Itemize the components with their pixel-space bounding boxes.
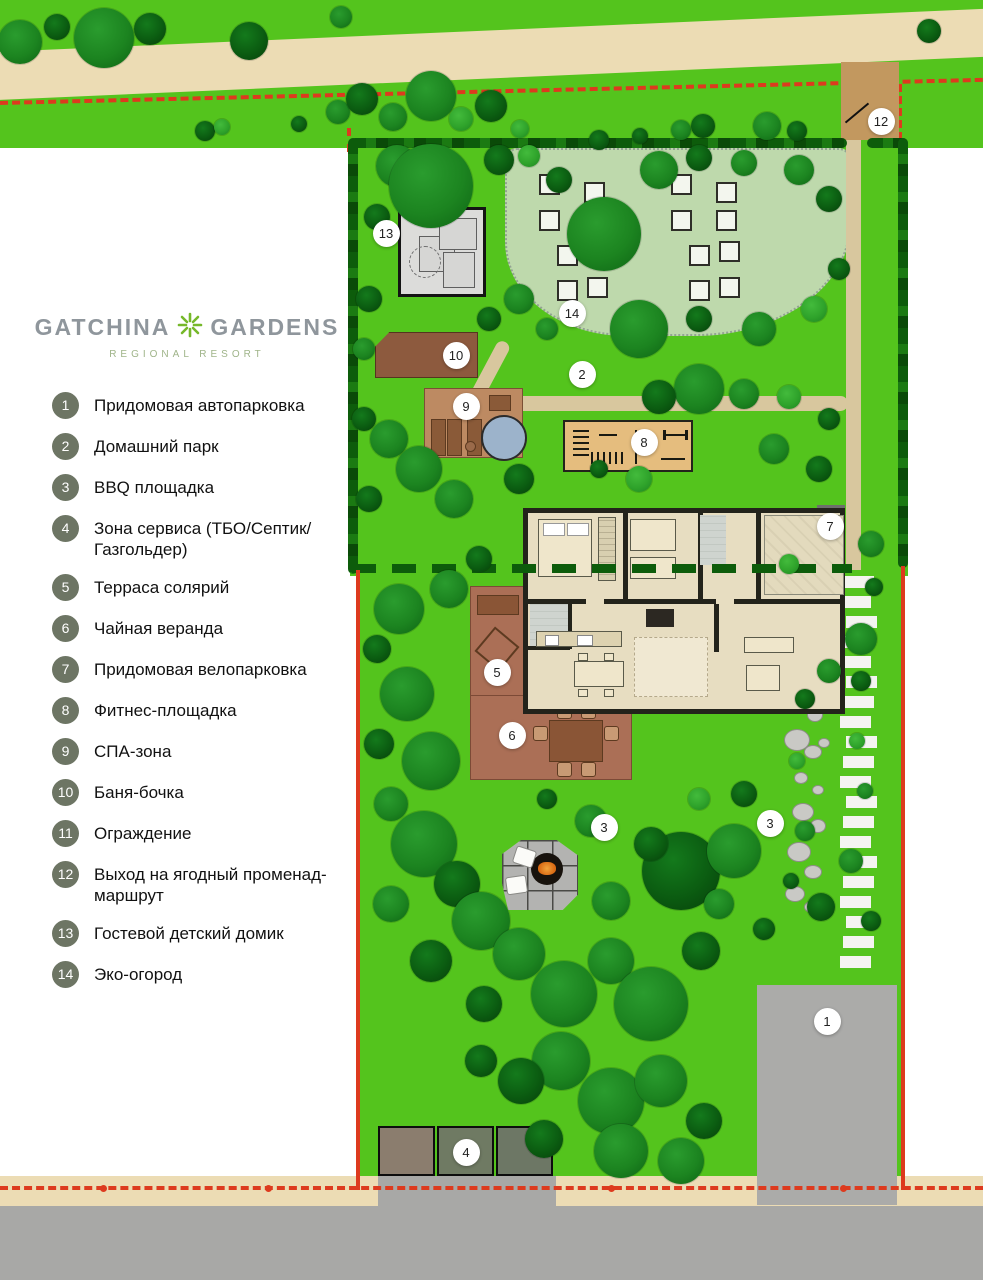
tree <box>731 150 757 176</box>
legend-label: Фитнес-площадка <box>94 697 237 721</box>
tree <box>484 145 514 175</box>
tree <box>230 22 268 60</box>
legend-number: 1 <box>52 392 79 419</box>
legend-item: 11Ограждение <box>52 820 352 847</box>
tree <box>352 407 376 431</box>
legend-item: 6Чайная веранда <box>52 615 352 642</box>
tree <box>828 258 850 280</box>
tree <box>777 385 801 409</box>
kitchen-island <box>646 609 674 627</box>
legend-item: 7Придомовая велопарковка <box>52 656 352 683</box>
tree <box>134 13 166 45</box>
logo-subtitle: REGIONAL RESORT <box>52 349 322 360</box>
boundary-dot <box>265 1185 272 1192</box>
tree <box>806 456 832 482</box>
logo-brand-left: GATCHINA <box>35 314 171 341</box>
garden-bed <box>716 210 737 231</box>
map-marker: 13 <box>373 220 400 247</box>
legend-item: 12Выход на ягодный променад-маршрут <box>52 861 352 906</box>
tree <box>917 19 941 43</box>
tree <box>363 635 391 663</box>
tree <box>374 584 424 634</box>
stove <box>577 635 593 646</box>
tree <box>379 103 407 131</box>
tree <box>546 167 572 193</box>
legend-label: Баня-бочка <box>94 779 184 803</box>
tree <box>839 849 863 873</box>
tree <box>504 464 534 494</box>
legend-label: Придомовая автопарковка <box>94 392 305 416</box>
tree <box>498 1058 544 1104</box>
boundary-red-dashed-bottom <box>0 1186 983 1190</box>
map-marker: 6 <box>499 722 526 749</box>
tree <box>742 312 776 346</box>
chair <box>604 653 614 661</box>
fitness-area <box>563 420 693 472</box>
legend-number: 7 <box>52 656 79 683</box>
garden-bed <box>719 277 740 298</box>
tree <box>406 71 456 121</box>
tree <box>291 116 307 132</box>
tree <box>686 306 712 332</box>
tree <box>592 882 630 920</box>
legend-number: 10 <box>52 779 79 806</box>
tree <box>753 918 775 940</box>
tree <box>634 827 668 861</box>
wall <box>756 513 761 599</box>
tree <box>364 729 394 759</box>
tree <box>465 1045 497 1077</box>
legend-number: 11 <box>52 820 79 847</box>
stone <box>794 772 808 784</box>
tree <box>704 889 734 919</box>
legend-number: 8 <box>52 697 79 724</box>
boundary-red-left <box>356 570 360 1190</box>
tree <box>504 284 534 314</box>
desk <box>746 665 780 691</box>
tree <box>374 787 408 821</box>
service-apron <box>378 1176 556 1208</box>
tree <box>807 893 835 921</box>
legend-label: СПА-зона <box>94 738 171 762</box>
garden-bed <box>689 280 710 301</box>
boundary-dot <box>608 1185 615 1192</box>
legend-number: 14 <box>52 961 79 988</box>
tree <box>493 928 545 980</box>
wall <box>604 599 716 604</box>
garden-bed <box>587 277 608 298</box>
fitness-bench <box>661 458 685 460</box>
legend-number: 12 <box>52 861 79 888</box>
wall <box>714 604 719 652</box>
chair <box>604 689 614 697</box>
spa-lounger <box>447 419 462 456</box>
tree <box>640 151 678 189</box>
site-plan: GATCHINA GARDENS REGIONAL RESORT 1Придом… <box>0 0 983 1280</box>
sofa <box>744 637 794 653</box>
fire-pit <box>531 853 563 885</box>
bottom-road <box>0 1206 983 1280</box>
sink <box>545 635 559 646</box>
stone <box>792 803 814 821</box>
tree <box>477 307 501 331</box>
tree <box>373 886 409 922</box>
legend: 1Придомовая автопарковка2Домашний парк3B… <box>52 392 352 1002</box>
garden-bed <box>719 241 740 262</box>
tree <box>849 733 865 749</box>
tree <box>531 961 597 1027</box>
tree <box>610 300 668 358</box>
tree <box>635 1055 687 1107</box>
stepping-stone <box>843 936 874 948</box>
pillow <box>543 523 565 536</box>
tree <box>435 480 473 518</box>
legend-item: 10Баня-бочка <box>52 779 352 806</box>
tree <box>632 128 648 144</box>
tree <box>707 824 761 878</box>
tree <box>691 114 715 138</box>
garden-bed <box>557 280 578 301</box>
kids-house-scribble <box>409 246 441 278</box>
chair <box>581 762 596 777</box>
stepping-stone <box>843 816 874 828</box>
pillow <box>567 523 589 536</box>
map-marker: 4 <box>453 1139 480 1166</box>
tree <box>525 1120 563 1158</box>
chair <box>557 762 572 777</box>
tree <box>858 531 884 557</box>
tree <box>795 689 815 709</box>
tree <box>44 14 70 40</box>
hot-tub <box>481 415 527 461</box>
tree <box>74 8 134 68</box>
legend-label: Выход на ягодный променад-маршрут <box>94 861 332 906</box>
fitness-ladder <box>573 428 589 456</box>
legend-label: BBQ площадка <box>94 474 214 498</box>
tree <box>845 623 877 655</box>
map-marker: 9 <box>453 393 480 420</box>
stone <box>812 785 824 795</box>
map-marker: 7 <box>817 513 844 540</box>
kids-house-block <box>443 252 475 288</box>
tree <box>783 873 799 889</box>
legend-label: Гостевой детский домик <box>94 920 284 944</box>
garden-bed <box>671 210 692 231</box>
stepping-stone <box>840 896 871 908</box>
tree <box>475 90 507 122</box>
veranda-table <box>549 720 603 762</box>
tree <box>861 911 881 931</box>
tree <box>356 286 382 312</box>
map-marker: 14 <box>559 300 586 327</box>
chair <box>604 726 619 741</box>
legend-item: 4Зона сервиса (ТБО/Септик/ Газгольдер) <box>52 515 352 560</box>
tree <box>466 546 492 572</box>
chair <box>578 689 588 697</box>
legend-number: 13 <box>52 920 79 947</box>
tree <box>466 986 502 1022</box>
boundary-red-right <box>901 566 905 1190</box>
wall <box>623 513 628 599</box>
tree <box>214 119 230 135</box>
tree <box>857 783 873 799</box>
tree <box>817 659 841 683</box>
legend-number: 3 <box>52 474 79 501</box>
tree <box>537 789 557 809</box>
tree <box>353 338 375 360</box>
legend-item: 8Фитнес-площадка <box>52 697 352 724</box>
tree <box>682 932 720 970</box>
stepping-stone <box>843 876 874 888</box>
service-box <box>378 1126 435 1176</box>
legend-item: 14Эко-огород <box>52 961 352 988</box>
map-marker: 1 <box>814 1008 841 1035</box>
tree <box>195 121 215 141</box>
tree <box>614 967 688 1041</box>
legend-item: 9СПА-зона <box>52 738 352 765</box>
tree <box>518 145 540 167</box>
tree <box>686 1103 722 1139</box>
fitness-weight <box>685 430 688 440</box>
legend-label: Терраса солярий <box>94 574 229 598</box>
tree <box>594 1124 648 1178</box>
tree <box>449 107 473 131</box>
fitness-bar <box>665 434 687 436</box>
logo: GATCHINA GARDENS REGIONAL RESORT <box>52 312 322 360</box>
map-marker: 2 <box>569 361 596 388</box>
tree <box>346 83 378 115</box>
tree <box>779 554 799 574</box>
stepping-stone <box>840 956 871 968</box>
hedge-bottom-dashed <box>352 564 852 573</box>
spa-ball <box>465 441 476 452</box>
tree <box>731 781 757 807</box>
stone <box>804 745 822 759</box>
tree <box>511 120 529 138</box>
bed <box>630 519 676 551</box>
tree <box>787 121 807 141</box>
tree <box>816 186 842 212</box>
legend-number: 5 <box>52 574 79 601</box>
tree <box>402 732 460 790</box>
tree <box>671 120 691 140</box>
stone <box>818 738 830 748</box>
house-floorplan <box>523 508 845 714</box>
legend-number: 6 <box>52 615 79 642</box>
stepping-stone <box>840 716 871 728</box>
tree <box>567 197 641 271</box>
tree <box>784 155 814 185</box>
tree <box>410 940 452 982</box>
garden-bed <box>539 210 560 231</box>
wall <box>734 599 840 604</box>
tree <box>795 821 815 841</box>
legend-item: 2Домашний парк <box>52 433 352 460</box>
legend-label: Ограждение <box>94 820 191 844</box>
tree <box>753 112 781 140</box>
tree <box>589 130 609 150</box>
stepping-stone <box>843 696 874 708</box>
tree <box>851 671 871 691</box>
tree <box>430 570 468 608</box>
tree <box>818 408 840 430</box>
tree <box>658 1138 704 1184</box>
map-marker: 12 <box>868 108 895 135</box>
boundary-dot <box>100 1185 107 1192</box>
garden-bed <box>716 182 737 203</box>
map-marker: 3 <box>757 810 784 837</box>
legend-item: 13Гостевой детский домик <box>52 920 352 947</box>
tree <box>590 460 608 478</box>
spa-bench <box>489 395 511 411</box>
logo-brand-right: GARDENS <box>210 314 339 341</box>
tree <box>674 364 724 414</box>
boundary-dot <box>840 1185 847 1192</box>
tree <box>789 753 805 769</box>
fire-icon <box>538 862 556 875</box>
legend-number: 4 <box>52 515 79 542</box>
chair <box>578 653 588 661</box>
legend-number: 2 <box>52 433 79 460</box>
tree <box>356 486 382 512</box>
tree <box>729 379 759 409</box>
tree <box>396 446 442 492</box>
tree <box>642 380 676 414</box>
map-marker: 10 <box>443 342 470 369</box>
tree <box>759 434 789 464</box>
dining-table <box>574 661 624 687</box>
tree <box>865 578 883 596</box>
garden-bed <box>689 245 710 266</box>
tree <box>686 145 712 171</box>
stone <box>804 865 822 879</box>
legend-label: Придомовая велопарковка <box>94 656 307 680</box>
chair <box>533 726 548 741</box>
tree <box>688 788 710 810</box>
legend-label: Домашний парк <box>94 433 219 457</box>
garden-side-path <box>846 138 861 570</box>
logo-star-icon <box>177 312 203 343</box>
stepping-stone <box>843 756 874 768</box>
stone <box>787 842 811 862</box>
legend-number: 9 <box>52 738 79 765</box>
legend-item: 5Терраса солярий <box>52 574 352 601</box>
legend-item: 3BBQ площадка <box>52 474 352 501</box>
hedge-right <box>898 138 908 568</box>
stepping-stone <box>840 836 871 848</box>
tree <box>380 667 434 721</box>
tree <box>801 296 827 322</box>
map-marker: 5 <box>484 659 511 686</box>
legend-label: Чайная веранда <box>94 615 223 639</box>
living-rug <box>634 637 708 697</box>
fitness-bar <box>599 434 617 436</box>
bathroom <box>700 515 726 565</box>
legend-label: Эко-огород <box>94 961 182 985</box>
tree <box>389 144 473 228</box>
map-marker: 3 <box>591 814 618 841</box>
tree <box>536 318 558 340</box>
legend-label: Зона сервиса (ТБО/Септик/ Газгольдер) <box>94 515 332 560</box>
tree <box>330 6 352 28</box>
tree <box>626 466 652 492</box>
map-marker: 8 <box>631 429 658 456</box>
legend-item: 1Придомовая автопарковка <box>52 392 352 419</box>
kitchen-counter <box>536 631 622 647</box>
fitness-weight <box>663 430 666 440</box>
tree <box>0 20 42 64</box>
terrace-sofa <box>477 595 519 615</box>
bbq-seat <box>505 875 528 896</box>
